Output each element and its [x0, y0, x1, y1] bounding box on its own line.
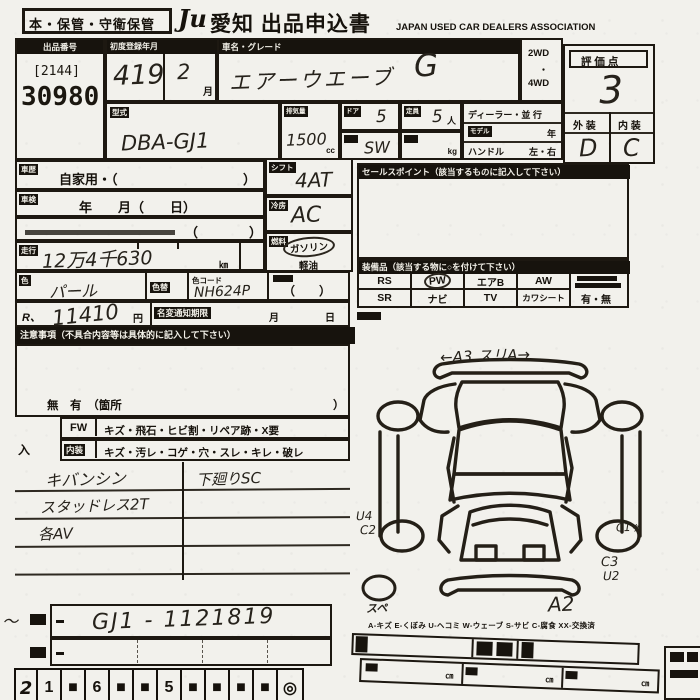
- usage-history-label: 車歴: [19, 164, 38, 175]
- dealer-label: ディーラー・並 行: [468, 108, 542, 121]
- instruction-paren-close: ）: [249, 222, 262, 241]
- displacement-box: 排気量 1500 cc: [280, 102, 340, 160]
- handle-label: ハンドル: [468, 145, 504, 158]
- sales-point-header: セールスポイント（該当するものに記入して下さい）: [359, 165, 630, 179]
- usage-history-row: 車歴 自家用・（ ）: [15, 160, 265, 190]
- fuel-box: 燃料 ガソリン 軽油: [265, 232, 353, 272]
- color-label: 色: [19, 275, 31, 286]
- exterior-grade: D: [579, 134, 598, 163]
- sales-point-box: セールスポイント（該当するものに記入して下さい）: [357, 163, 629, 259]
- color-memo-header-blob: [273, 275, 293, 282]
- engine-label-blob: [30, 647, 46, 658]
- usage-history-value: 自家用・（: [59, 169, 118, 188]
- recycle-label: R、: [22, 309, 41, 325]
- measure-b-cm1: ㎝: [445, 670, 453, 681]
- lot-number-header: 出品番号: [17, 40, 103, 54]
- presence-close: ）: [333, 397, 345, 413]
- engine-number-row: [50, 638, 332, 666]
- model-code-header: 型式: [110, 107, 129, 118]
- color-row: 色 パール 色替 色コード NH624P （ ）: [15, 271, 350, 301]
- equip-navi: ナビ: [412, 290, 465, 306]
- doors-value: 5: [376, 107, 388, 127]
- equip-rs: RS: [359, 274, 412, 290]
- recycle-fee-value: 11410: [51, 300, 120, 331]
- mileage-unit: ㎞: [219, 258, 228, 271]
- equip-sr: SR: [359, 290, 412, 306]
- storage-type-box: 本・保管・守衛保管: [22, 8, 172, 34]
- aircon-box: 冷房 AC: [265, 196, 353, 232]
- inspection-label: 車検: [19, 194, 38, 205]
- car-name-header: 車名・グレード: [219, 40, 521, 54]
- equip-leather-seat: カワシート: [518, 290, 571, 306]
- fw-condition-text: キズ・飛石・ヒビ割・リペア跡・X要: [104, 423, 279, 438]
- strip-cell: 1: [38, 668, 62, 700]
- equip-pw-circled: PW: [423, 272, 451, 290]
- car-name-value: エアーウエーブ: [229, 61, 395, 97]
- month-unit: 月: [203, 83, 213, 98]
- note-line-1-right: 下廻りSC: [196, 467, 262, 490]
- diagram-annotation-left-2: C2: [360, 523, 376, 538]
- interior-grade: C: [623, 134, 641, 163]
- name-change-deadline-label: 名変通知期限: [154, 307, 211, 319]
- strip-cell: ■: [254, 668, 278, 700]
- damage-legend: A-キズ E-くぼみ U-ヘコミ W-ウェーブ S-サビ C-腐食 XX-交換済: [368, 620, 595, 631]
- deadline-day: 日: [325, 309, 335, 324]
- measure-a-tab2: [521, 642, 534, 658]
- measure-b-cm3: ㎝: [641, 678, 649, 689]
- diagram-annotation-left-1: U4: [356, 509, 373, 524]
- record-book-label-blob2: [575, 283, 621, 288]
- record-book-options: 有・無: [581, 291, 611, 306]
- defect-notes-box: 無 有 （箇所 ）: [15, 344, 350, 417]
- body-type-header-blob: [344, 135, 358, 143]
- color-code-value: NH624P: [194, 283, 251, 301]
- model-year-unit: 年: [547, 127, 556, 140]
- instruction-paren-open: （: [185, 222, 198, 241]
- interior-condition-row: 内装 キズ・汚レ・コゲ・穴・スレ・キレ・破レ: [60, 439, 350, 461]
- storage-type-label: 本・保管・守衛保管: [29, 14, 155, 33]
- weight-cell: kg: [400, 131, 462, 160]
- memo-tab-blob: [357, 312, 381, 320]
- aircon-label: 冷房: [269, 200, 288, 211]
- chassis-label-blob: [30, 614, 46, 625]
- equip-tv: TV: [465, 290, 518, 306]
- deadline-month: 月: [269, 309, 279, 324]
- measure-b-tab3: [565, 671, 577, 679]
- lot-bracket-number: [2144]: [33, 64, 80, 79]
- model-year-label: モデル: [468, 126, 492, 137]
- strip-cell: ■: [134, 668, 158, 700]
- diagram-annotation-right-2b: U2: [603, 569, 620, 584]
- doors-cell: ドア 5: [340, 102, 400, 131]
- lot-number-box: 出品番号 [2144] 30980: [15, 38, 105, 160]
- lot-number: 30980: [21, 82, 99, 112]
- measure-b-tab2: [465, 667, 477, 675]
- record-book-cell: 有・無: [571, 274, 626, 306]
- strip-cell: 5: [158, 668, 182, 700]
- displacement-header: 排気量: [284, 106, 308, 117]
- first-registration-header: 初度登録年月: [107, 40, 218, 54]
- strip-cell: ■: [110, 668, 134, 700]
- drive-4wd: 4WD: [528, 78, 549, 89]
- mileage-row: 走行 12万4千630 ㎞: [15, 241, 265, 271]
- shift-value: 4AT: [295, 167, 333, 192]
- enter-mark: 入: [18, 441, 30, 458]
- body-type-cell: SW: [340, 131, 400, 160]
- recycle-fee-row: R、 11410 円 名変通知期限 月 日: [15, 301, 350, 327]
- strip-cell: ◎: [278, 668, 304, 700]
- mileage-label: 走行: [19, 245, 38, 256]
- note-line-1: キバンシン: [45, 465, 127, 492]
- drive-dot: ・: [539, 63, 548, 76]
- aircon-value: AC: [291, 202, 322, 228]
- shift-label: シフト: [269, 162, 296, 173]
- measure-b-tab1: [365, 663, 377, 671]
- weight-unit: kg: [448, 147, 457, 156]
- model-code-value: DBA-GJ1: [121, 128, 210, 155]
- score-header-box: 評 価 点: [569, 50, 648, 68]
- score-value: 3: [598, 68, 624, 113]
- fuel-diesel: 軽油: [299, 258, 318, 272]
- spare-tire-label: スペ: [366, 600, 388, 617]
- body-type-value: SW: [364, 138, 391, 158]
- handle-value: 左・右: [529, 145, 556, 158]
- fuel-gasoline-circled: ガソリン: [282, 235, 336, 259]
- equip-aw: AW: [518, 274, 571, 290]
- capacity-unit: 人: [447, 114, 456, 127]
- color-memo-paren: （ ）: [283, 282, 331, 299]
- capacity-header: 定員: [404, 106, 421, 117]
- strip-cell: ■: [206, 668, 230, 700]
- margin-squiggle: 〜: [2, 608, 19, 633]
- interior-header: 内 装: [618, 117, 641, 132]
- car-name-box: 車名・グレード エアーウエーブ G: [217, 38, 520, 102]
- displacement-value: 1500: [286, 129, 327, 149]
- form-title: 愛知 出品申込書: [210, 8, 371, 38]
- record-book-label-blob: [577, 276, 617, 281]
- measure-b-cm2: ㎝: [545, 674, 553, 685]
- shift-box: シフト 4AT: [265, 158, 353, 196]
- capacity-cell: 定員 5 人: [400, 102, 462, 131]
- instruction-row: （ ）: [15, 217, 265, 241]
- strip-cell: ■: [230, 668, 254, 700]
- cutoff-stamp-box: [664, 646, 700, 700]
- fw-label: FW: [70, 422, 87, 434]
- recycle-fee-unit: 円: [133, 310, 143, 325]
- note-line-3: 各AV: [38, 522, 73, 544]
- weight-header-blob: [404, 135, 418, 143]
- auction-sheet-scan: 本・保管・守衛保管 Ju 愛知 出品申込書 JAPAN USED CAR DEA…: [0, 0, 700, 700]
- fw-condition-row: FW キズ・飛石・ヒビ割・リペア跡・X要: [60, 417, 350, 439]
- equipment-header: 装備品（該当する物に○を付けて下さい）: [359, 261, 630, 274]
- color-change-label: 色替: [150, 282, 170, 293]
- inspection-month-value: 2: [177, 60, 191, 84]
- score-header: 評 価 点: [581, 54, 618, 69]
- drive-2wd: 2WD: [528, 48, 549, 59]
- diagram-annotation-bottom: A2: [548, 592, 575, 617]
- inspection-month-cell: 2 月: [163, 54, 217, 100]
- first-registration-value: 419: [112, 59, 165, 92]
- chassis-number-row: GJ1 - 1121819: [50, 604, 332, 638]
- color-value: パール: [49, 277, 98, 303]
- first-registration-box: 初度登録年月 419 2 月: [105, 38, 217, 102]
- measure-a-stamp2: [496, 642, 512, 657]
- displacement-unit: cc: [326, 146, 335, 155]
- strip-cell: ■: [182, 668, 206, 700]
- drive-type-box: 2WD ・ 4WD: [520, 38, 563, 102]
- exterior-header: 外 装: [573, 117, 596, 132]
- capacity-value: 5: [432, 107, 444, 127]
- diagram-annotation-top: ←A3 スリA→: [440, 343, 531, 367]
- diagram-annotation-right-1: C1ヶ: [616, 519, 642, 536]
- dealer-box: ディーラー・並 行 モデル 年 ハンドル 左・右: [462, 102, 563, 160]
- interior-label: 内装: [64, 444, 85, 456]
- illegible-instruction-smudge: [25, 230, 175, 235]
- chassis-number-value: GJ1 - 1121819: [92, 604, 276, 635]
- usage-history-close: ）: [243, 169, 256, 188]
- equipment-box: 装備品（該当する物に○を付けて下さい） RS PW エアB AW SR ナビ T…: [357, 259, 629, 308]
- presence-text: 無 有 （箇所: [47, 397, 122, 413]
- strip-cell: ■: [62, 668, 86, 700]
- doors-header: ドア: [344, 106, 361, 117]
- interior-condition-text: キズ・汚レ・コゲ・穴・スレ・キレ・破レ: [104, 445, 304, 460]
- caution-header: 注意事項（不具合内容等は具体的に記入して下さい）: [15, 327, 355, 344]
- note-line-2: スタッドレス2T: [40, 493, 149, 518]
- strip-cell: 2: [14, 668, 38, 700]
- strip-cell: 6: [86, 668, 110, 700]
- model-code-box: 型式 DBA-GJ1: [105, 102, 280, 160]
- association-name: JAPAN USED CAR DEALERS ASSOCIATION: [396, 22, 595, 33]
- score-box: 評 価 点 3 外 装 内 装 D C: [563, 44, 655, 164]
- ju-logo: Ju: [178, 4, 207, 33]
- grade-value: G: [413, 48, 438, 85]
- measure-a-tab: [355, 636, 368, 652]
- inspection-value: 年 月（ 日）: [79, 197, 196, 216]
- equip-airbag: エアB: [465, 274, 518, 290]
- inspection-expiry-row: 車検 年 月（ 日）: [15, 190, 265, 217]
- measure-a-stamp1: [476, 641, 492, 656]
